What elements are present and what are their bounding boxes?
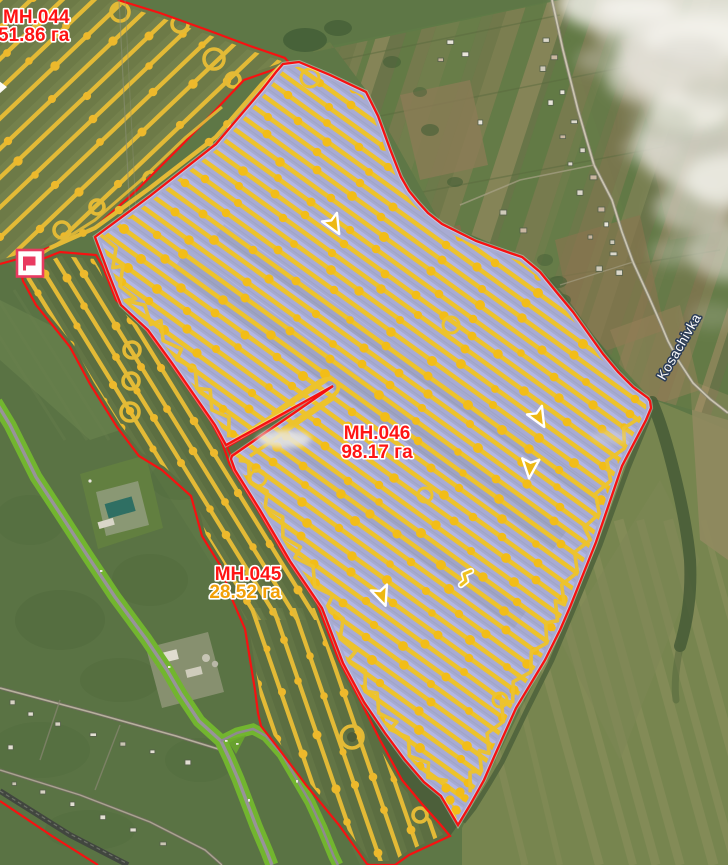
svg-text:28.52 га: 28.52 га [209, 582, 281, 603]
svg-text:51.86 га: 51.86 га [0, 25, 70, 46]
svg-text:98.17 га: 98.17 га [341, 442, 413, 463]
svg-text:МН.046: МН.046 [344, 423, 411, 444]
